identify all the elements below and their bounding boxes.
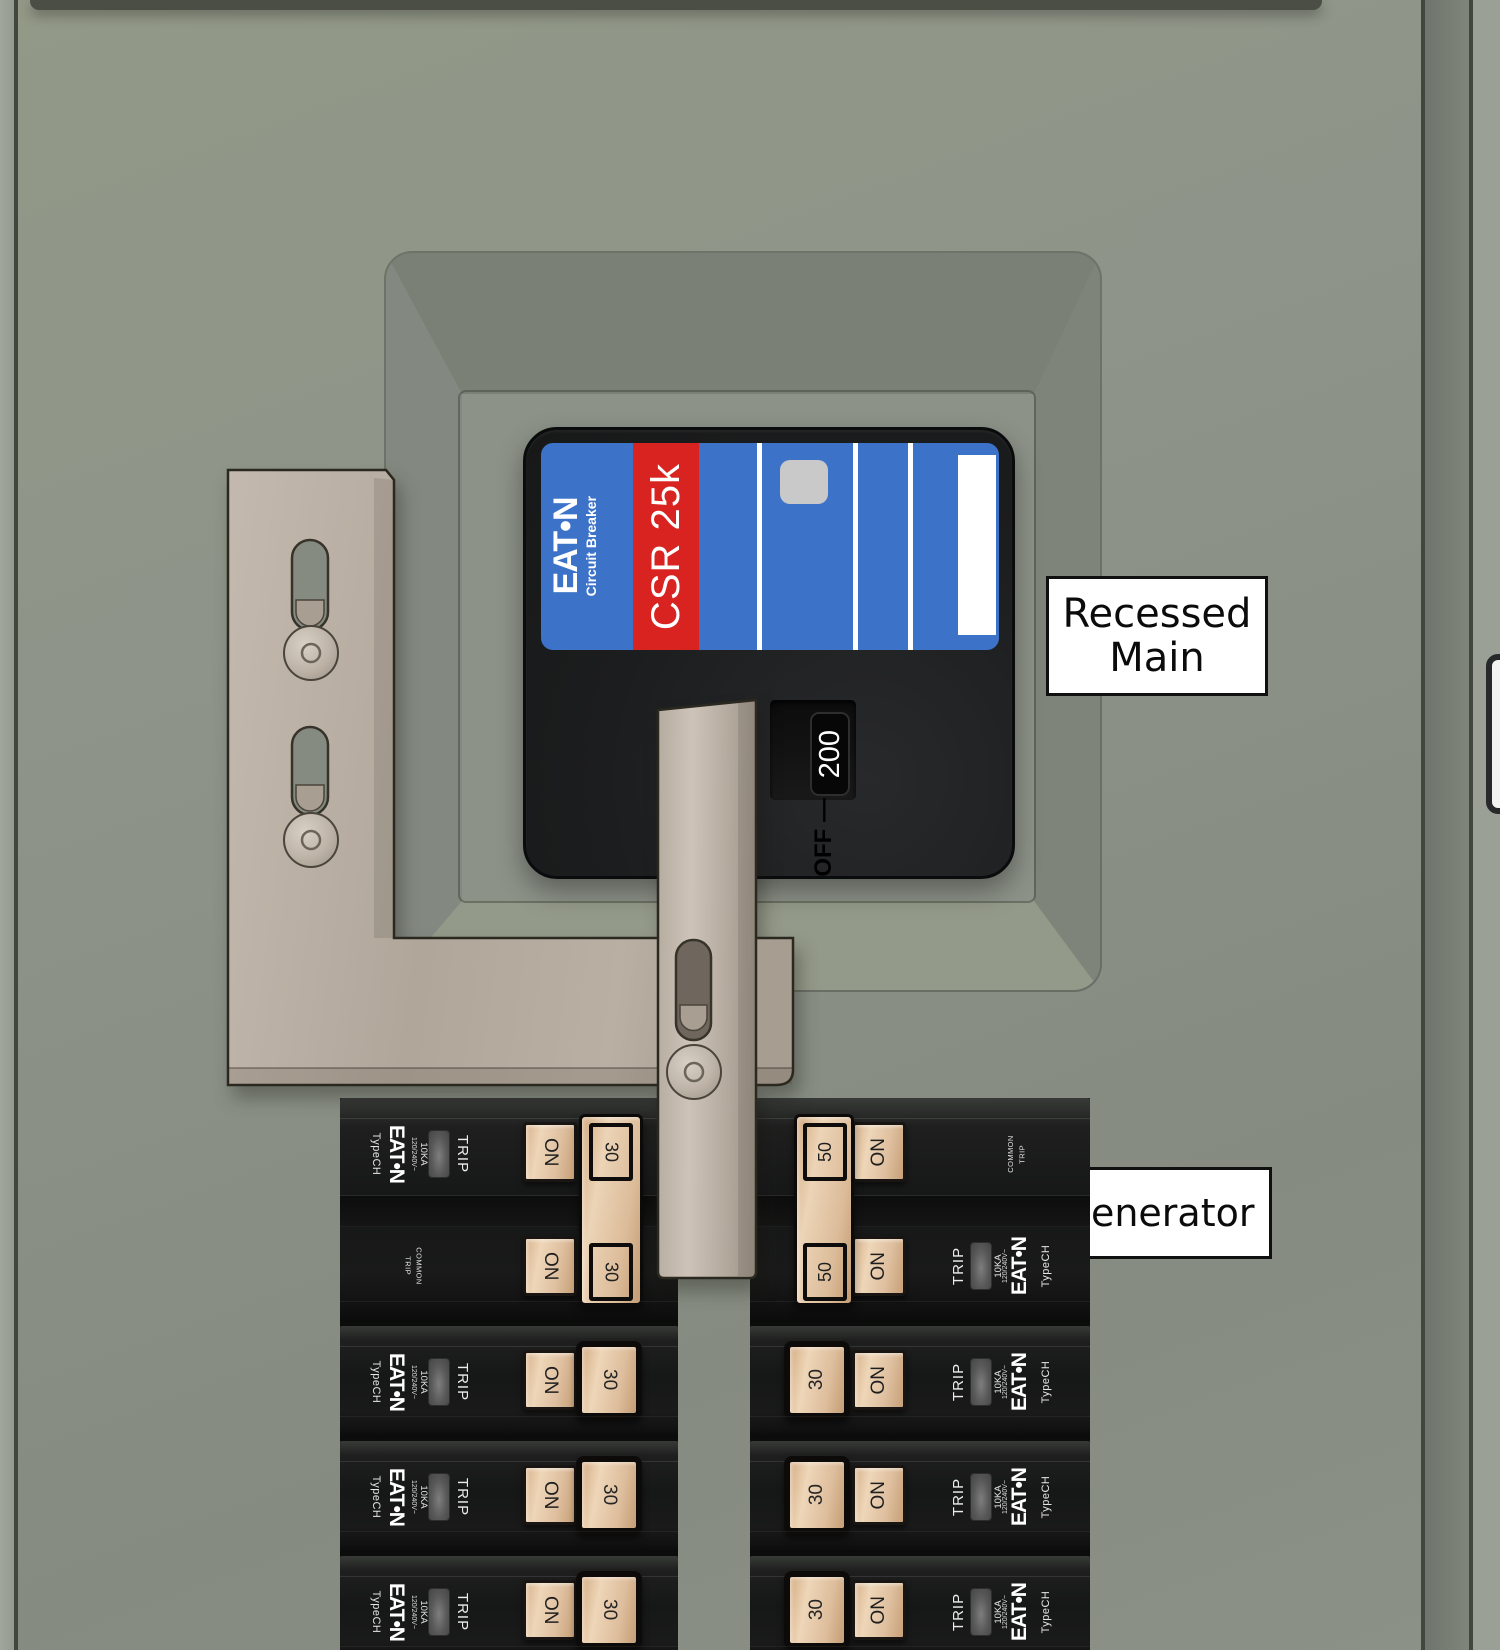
bracket-right-fold (374, 478, 394, 938)
recessed-main-label: Recessed Main (1046, 576, 1268, 696)
bracket-screw[interactable] (284, 626, 338, 680)
bracket-screw[interactable] (284, 813, 338, 867)
generator-interlock-bracket[interactable] (0, 0, 1500, 1650)
recessed-main-line2: Main (1109, 636, 1205, 680)
bracket-slot (292, 727, 328, 815)
bracket-screw[interactable] (667, 1045, 721, 1099)
panel-illustration: Generator EAT•N Circuit Breaker CSR 25k … (0, 0, 1500, 1650)
bracket-slot (292, 540, 328, 630)
bracket-slot (676, 940, 711, 1040)
arm-right-fold (738, 700, 756, 1276)
recessed-main-line1: Recessed (1063, 592, 1252, 636)
